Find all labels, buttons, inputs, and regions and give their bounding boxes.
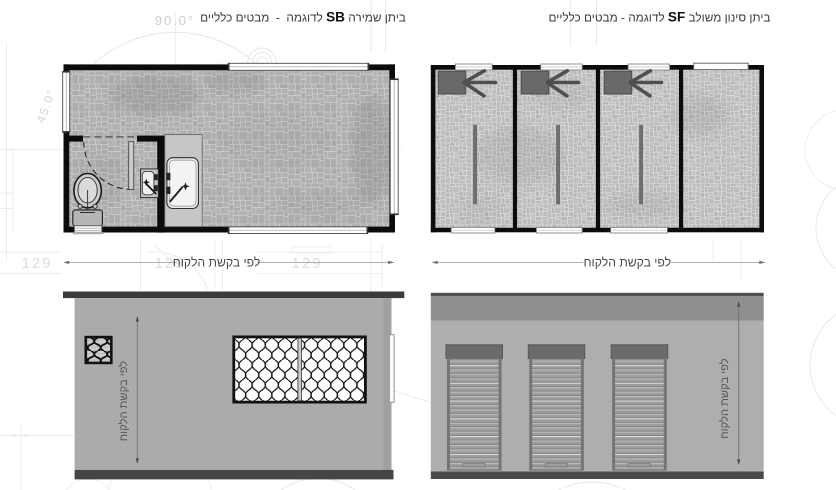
svg-text:90.0°: 90.0° (155, 13, 196, 28)
svg-text:לפי בקשת הלקוח: לפי בקשת הלקוח (117, 361, 130, 441)
svg-text:ביתן סינון משולב SF לדוגמה - מ: ביתן סינון משולב SF לדוגמה - מבטים כלליי… (549, 10, 771, 25)
svg-text:לפי בקשת הלקוח: לפי בקשת הלקוח (584, 255, 672, 269)
svg-text:129: 129 (21, 255, 52, 272)
svg-text:לפי בקשת הלקוח: לפי בקשת הלקוח (173, 255, 261, 269)
svg-text:129: 129 (291, 255, 322, 272)
svg-text:לפי בקשת הלקוח: לפי בקשת הלקוח (718, 358, 731, 438)
svg-text:ביתן שמירה SB לדוגמה - מבטים: ביתן שמירה SB לדוגמה - מבטים כלליים (200, 10, 406, 25)
